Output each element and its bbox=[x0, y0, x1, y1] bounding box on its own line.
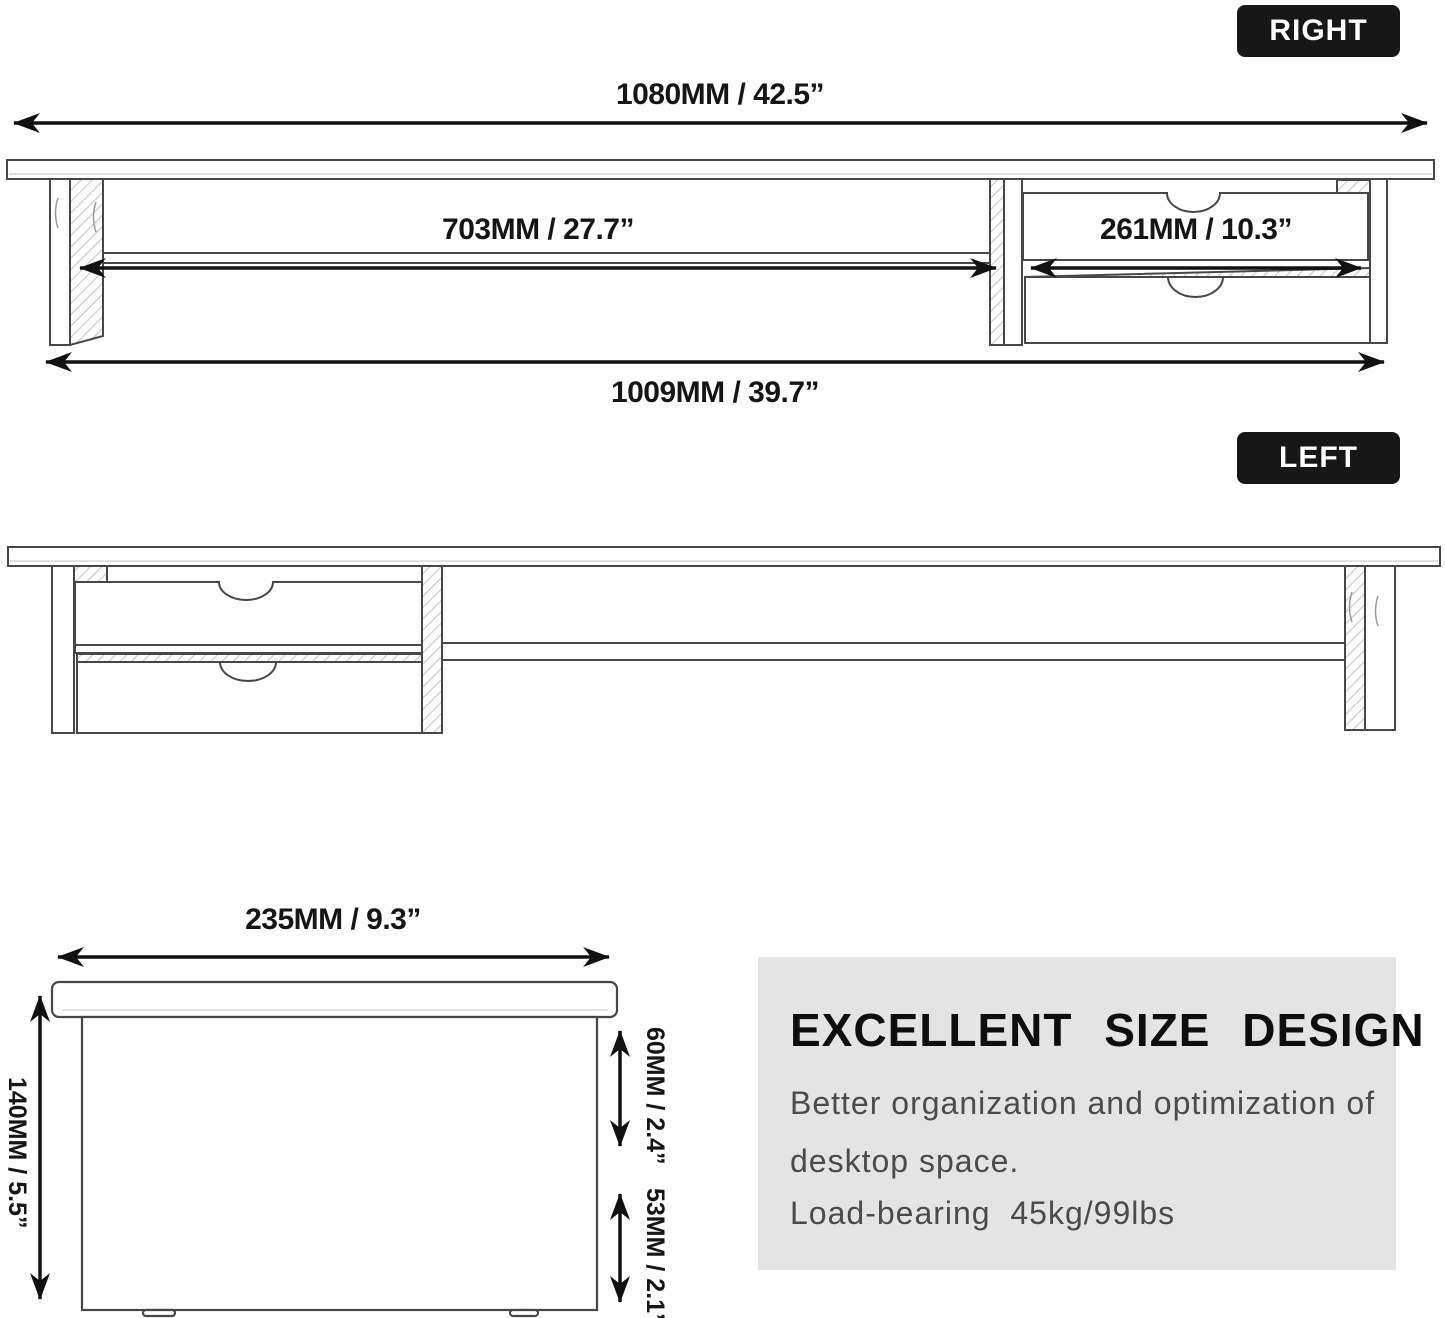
info-box-load-bearing-text: Load-bearing 45kg/99lbs bbox=[790, 1195, 1175, 1232]
left-orientation-badge: LEFT bbox=[1237, 432, 1400, 484]
right-orientation-badge: RIGHT bbox=[1237, 5, 1400, 57]
dimension-label-upper-height: 60MM / 2.4” bbox=[640, 1027, 669, 1165]
size-design-info-box: EXCELLENT SIZE DESIGN Better organizatio… bbox=[758, 957, 1396, 1270]
dimension-label-depth: 235MM / 9.3” bbox=[133, 903, 533, 937]
info-box-text-line: desktop space. bbox=[790, 1143, 1019, 1180]
product-dimension-sheet: RIGHT LEFT 1080MM / 42.5” 703MM / 27.7” … bbox=[0, 0, 1445, 1318]
dimension-label-lower-height: 53MM / 2.1” bbox=[640, 1188, 669, 1318]
dimension-label-shelf-width: 703MM / 27.7” bbox=[338, 213, 738, 247]
monitor-stand-left-view bbox=[8, 547, 1440, 733]
dimension-label-base-width: 1009MM / 39.7” bbox=[515, 376, 915, 410]
dimension-label-height: 140MM / 5.5” bbox=[2, 1077, 31, 1228]
monitor-stand-right-view bbox=[7, 160, 1434, 345]
dimension-label-drawer-width: 261MM / 10.3” bbox=[996, 213, 1396, 247]
info-box-heading: EXCELLENT SIZE DESIGN bbox=[790, 1003, 1425, 1057]
monitor-stand-side-view bbox=[52, 982, 617, 1316]
info-box-text-line: Better organization and optimization of bbox=[790, 1085, 1375, 1122]
dimension-label-total-width-top: 1080MM / 42.5” bbox=[520, 78, 920, 112]
